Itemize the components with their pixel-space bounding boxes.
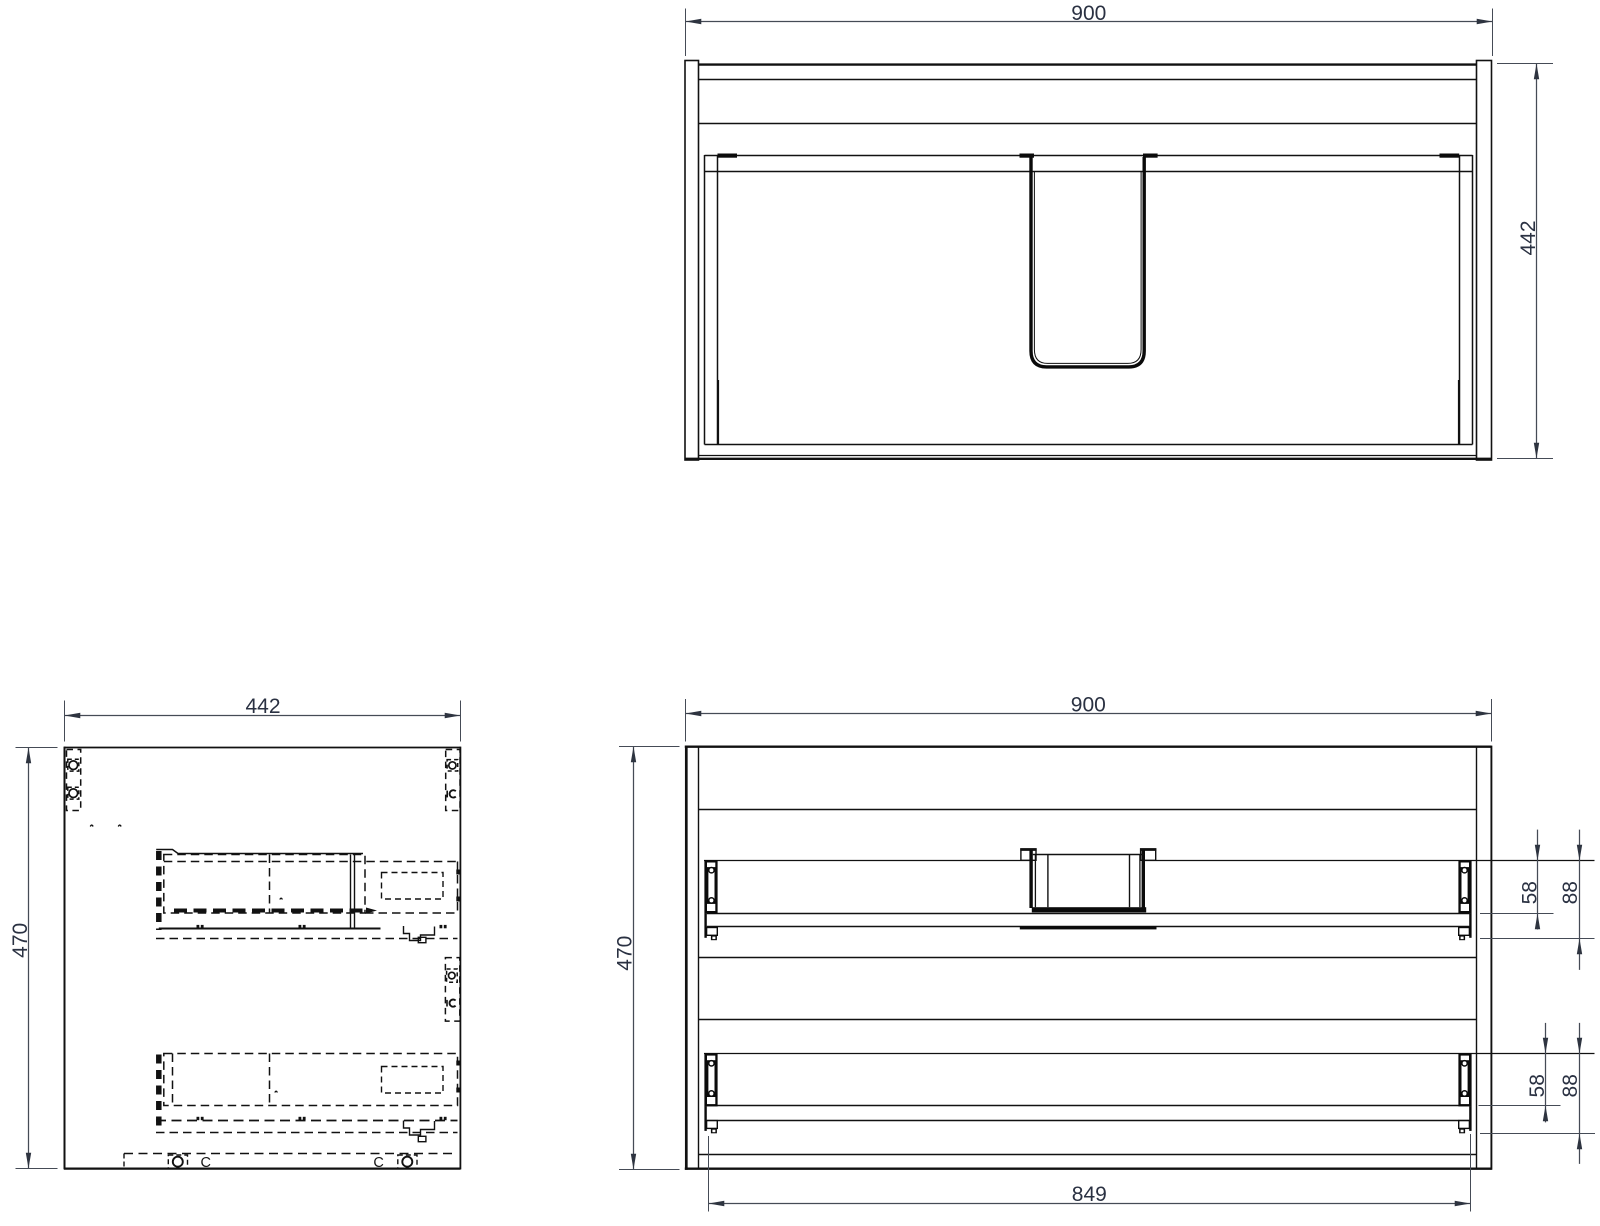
- svg-text:88: 88: [1559, 881, 1582, 904]
- svg-text:900: 900: [1071, 2, 1106, 25]
- svg-text:470: 470: [614, 936, 637, 971]
- svg-text:442: 442: [245, 695, 280, 718]
- svg-text:58: 58: [1518, 881, 1541, 904]
- svg-text:C: C: [373, 1155, 383, 1171]
- svg-text:442: 442: [1517, 220, 1540, 255]
- svg-text:849: 849: [1072, 1183, 1107, 1206]
- svg-text:900: 900: [1071, 693, 1106, 716]
- svg-text:C: C: [201, 1155, 211, 1171]
- svg-text:58: 58: [1526, 1074, 1549, 1097]
- svg-text:470: 470: [9, 923, 32, 958]
- svg-text:88: 88: [1559, 1074, 1582, 1097]
